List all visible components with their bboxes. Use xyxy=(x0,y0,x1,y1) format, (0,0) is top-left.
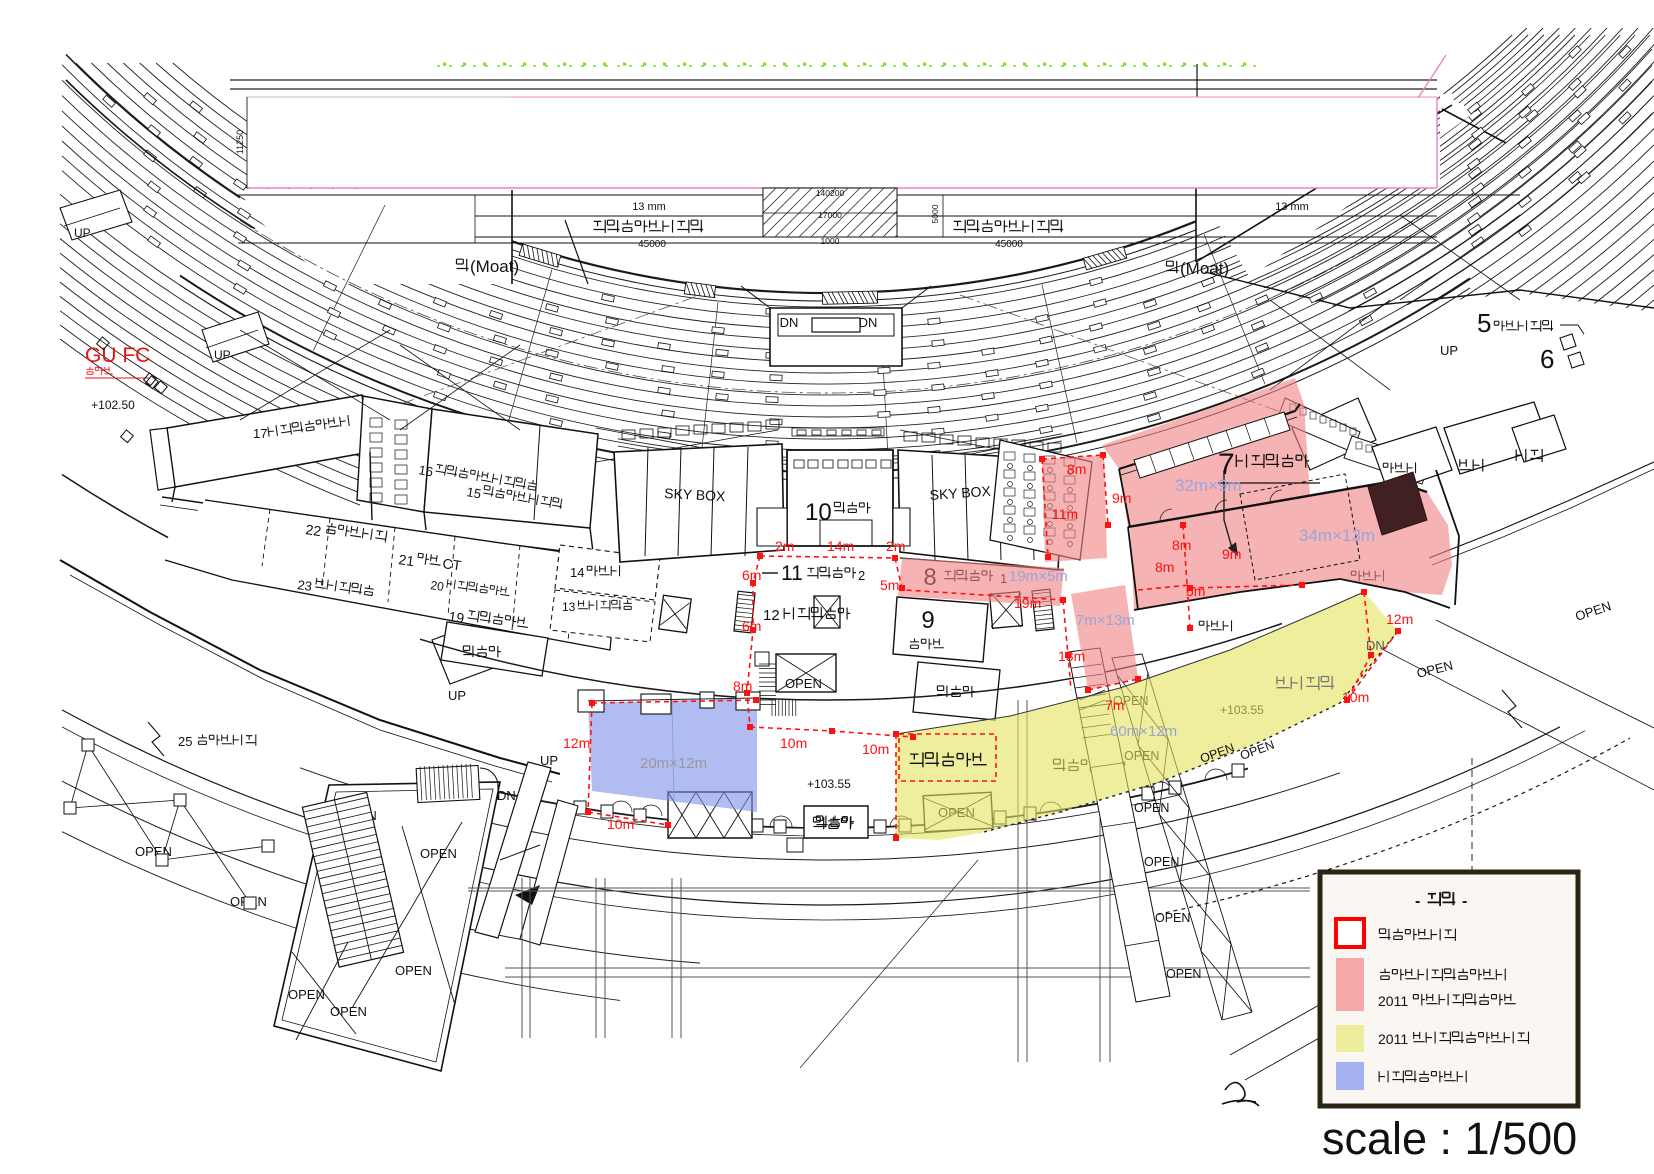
svg-text:8m: 8m xyxy=(1155,559,1174,575)
svg-text:60m×12m: 60m×12m xyxy=(1110,723,1177,740)
svg-text:11: 11 xyxy=(781,562,803,585)
svg-text:14: 14 xyxy=(570,565,584,580)
svg-text:OPEN: OPEN xyxy=(1144,855,1179,869)
svg-text:14m: 14m xyxy=(827,538,854,554)
svg-text:10m: 10m xyxy=(862,741,889,757)
svg-text:6: 6 xyxy=(1540,344,1554,374)
svg-text:DN: DN xyxy=(859,315,878,330)
svg-text:OPEN: OPEN xyxy=(395,963,432,978)
svg-text:6m: 6m xyxy=(742,567,761,583)
svg-text:(Moat): (Moat) xyxy=(470,257,519,276)
svg-text:15: 15 xyxy=(465,484,482,501)
svg-text:9: 9 xyxy=(921,607,934,634)
svg-text:45000: 45000 xyxy=(995,239,1023,250)
svg-text:-: - xyxy=(1462,893,1467,910)
svg-text:7m×13m: 7m×13m xyxy=(1076,612,1135,629)
svg-text:17000: 17000 xyxy=(818,210,842,220)
svg-text:20m×12m: 20m×12m xyxy=(640,755,707,772)
svg-text:OPEN: OPEN xyxy=(330,1004,367,1019)
svg-text:2011: 2011 xyxy=(1378,993,1408,1009)
svg-text:13 mm: 13 mm xyxy=(632,201,666,213)
svg-text:13 mm: 13 mm xyxy=(1275,201,1309,213)
svg-text:22: 22 xyxy=(305,521,323,539)
svg-text:1000: 1000 xyxy=(821,236,840,246)
svg-text:11m: 11m xyxy=(1052,506,1078,522)
svg-text:21: 21 xyxy=(398,551,416,569)
svg-text:32m×9m: 32m×9m xyxy=(1175,476,1242,495)
svg-text:10m: 10m xyxy=(607,816,634,832)
svg-text:34m×13m: 34m×13m xyxy=(1299,526,1375,545)
svg-text:12m: 12m xyxy=(1386,611,1413,627)
svg-text:OPEN: OPEN xyxy=(1155,911,1190,925)
svg-text:23: 23 xyxy=(297,577,313,594)
svg-text:10m: 10m xyxy=(1342,689,1369,705)
svg-text:CT: CT xyxy=(442,555,463,574)
svg-text:9m: 9m xyxy=(1222,546,1241,562)
svg-text:OPEN: OPEN xyxy=(785,676,822,691)
svg-text:20: 20 xyxy=(430,578,445,594)
svg-text:12m: 12m xyxy=(563,735,590,751)
svg-text:UP: UP xyxy=(448,688,466,703)
svg-text:DN: DN xyxy=(497,788,516,803)
svg-text:DN: DN xyxy=(1366,638,1385,653)
svg-text:140200: 140200 xyxy=(816,188,845,198)
svg-text:SKY BOX: SKY BOX xyxy=(664,485,727,504)
svg-text:45000: 45000 xyxy=(638,239,666,250)
svg-text:OPEN: OPEN xyxy=(288,987,325,1002)
svg-text:16: 16 xyxy=(417,462,434,479)
svg-text:8m: 8m xyxy=(733,678,752,694)
svg-text:7m: 7m xyxy=(1105,697,1124,713)
svg-text:12: 12 xyxy=(763,607,780,624)
svg-text:8m: 8m xyxy=(1172,537,1191,553)
svg-text:UP: UP xyxy=(540,753,558,768)
svg-text:(Moat): (Moat) xyxy=(1180,259,1229,278)
svg-text:11250: 11250 xyxy=(235,130,245,154)
svg-text:19m×5m: 19m×5m xyxy=(1009,568,1068,585)
svg-text:6m: 6m xyxy=(742,618,761,634)
svg-text:19m: 19m xyxy=(1014,595,1041,611)
svg-text:scale : 1/500: scale : 1/500 xyxy=(1322,1113,1577,1164)
svg-text:5000: 5000 xyxy=(930,204,940,223)
svg-text:OPEN: OPEN xyxy=(420,846,457,861)
svg-text:2m: 2m xyxy=(775,538,794,554)
svg-text:UP: UP xyxy=(214,348,231,362)
svg-text:8m: 8m xyxy=(1067,461,1086,477)
svg-text:+102.50: +102.50 xyxy=(91,398,135,412)
svg-text:10: 10 xyxy=(805,499,832,526)
svg-text:OPEN: OPEN xyxy=(1134,801,1169,815)
svg-text:5m: 5m xyxy=(880,577,899,593)
svg-text:UP: UP xyxy=(1440,343,1458,358)
svg-text:-: - xyxy=(1415,893,1420,910)
svg-text:2011: 2011 xyxy=(1378,1031,1408,1047)
svg-text:DN: DN xyxy=(780,315,799,330)
svg-text:GU FC: GU FC xyxy=(85,344,150,367)
svg-text:UP: UP xyxy=(74,226,91,240)
svg-text:2m: 2m xyxy=(886,538,905,554)
svg-text:13m: 13m xyxy=(1058,648,1085,664)
svg-text:+103.55: +103.55 xyxy=(807,777,851,791)
svg-text:10m: 10m xyxy=(780,735,807,751)
svg-text:5m: 5m xyxy=(1186,583,1205,599)
svg-text:5: 5 xyxy=(1477,308,1491,338)
svg-text:13: 13 xyxy=(562,600,576,614)
svg-text:2: 2 xyxy=(858,568,865,583)
svg-text:25: 25 xyxy=(178,734,192,749)
svg-text:OPEN: OPEN xyxy=(1166,967,1201,981)
svg-text:17: 17 xyxy=(253,426,267,441)
svg-text:9m: 9m xyxy=(1112,490,1131,506)
